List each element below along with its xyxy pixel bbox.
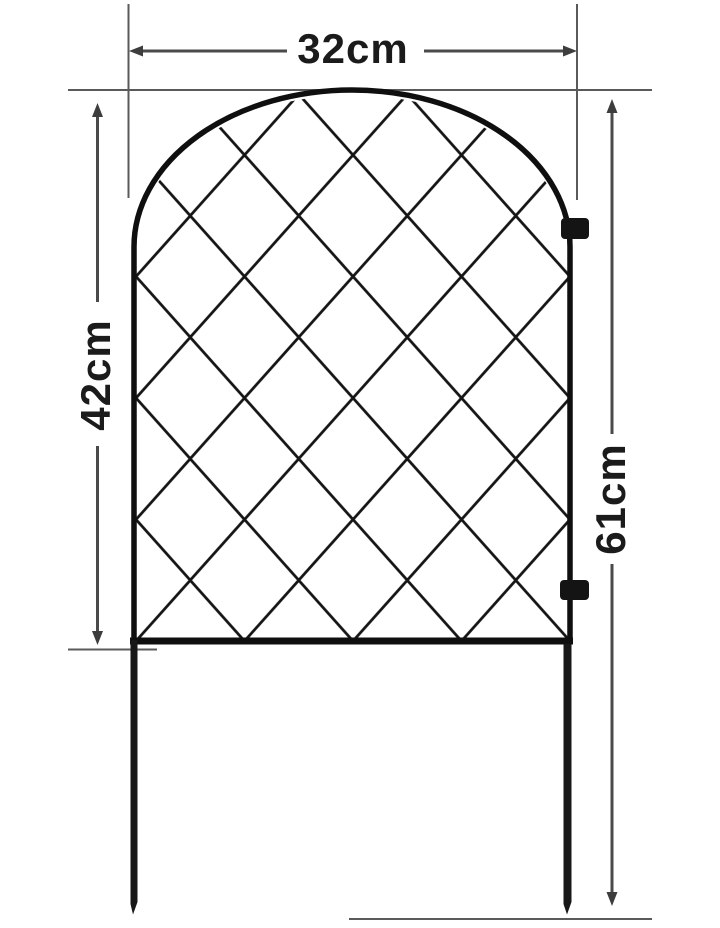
panel-height-arrow-up: [92, 103, 103, 117]
width-arrow-left: [129, 46, 143, 57]
right-ground-stake: [564, 644, 572, 915]
fence-dimension-diagram: 32cm 42cm 61cm: [0, 0, 720, 928]
width-arrow-right: [563, 46, 577, 57]
connector-clip-top: [561, 218, 589, 239]
left-ground-stake: [131, 640, 138, 915]
fence-panel: [110, 60, 600, 915]
panel-height-dimension-label: 42cm: [75, 319, 117, 430]
overall-height-dimension-label: 61cm: [590, 443, 632, 554]
connector-clip-bottom: [560, 580, 589, 600]
width-dimension-label: 32cm: [297, 28, 408, 70]
panel-height-arrow-down: [92, 631, 103, 645]
overall-height-arrow-up: [607, 99, 618, 113]
overall-height-arrow-down: [607, 892, 618, 906]
